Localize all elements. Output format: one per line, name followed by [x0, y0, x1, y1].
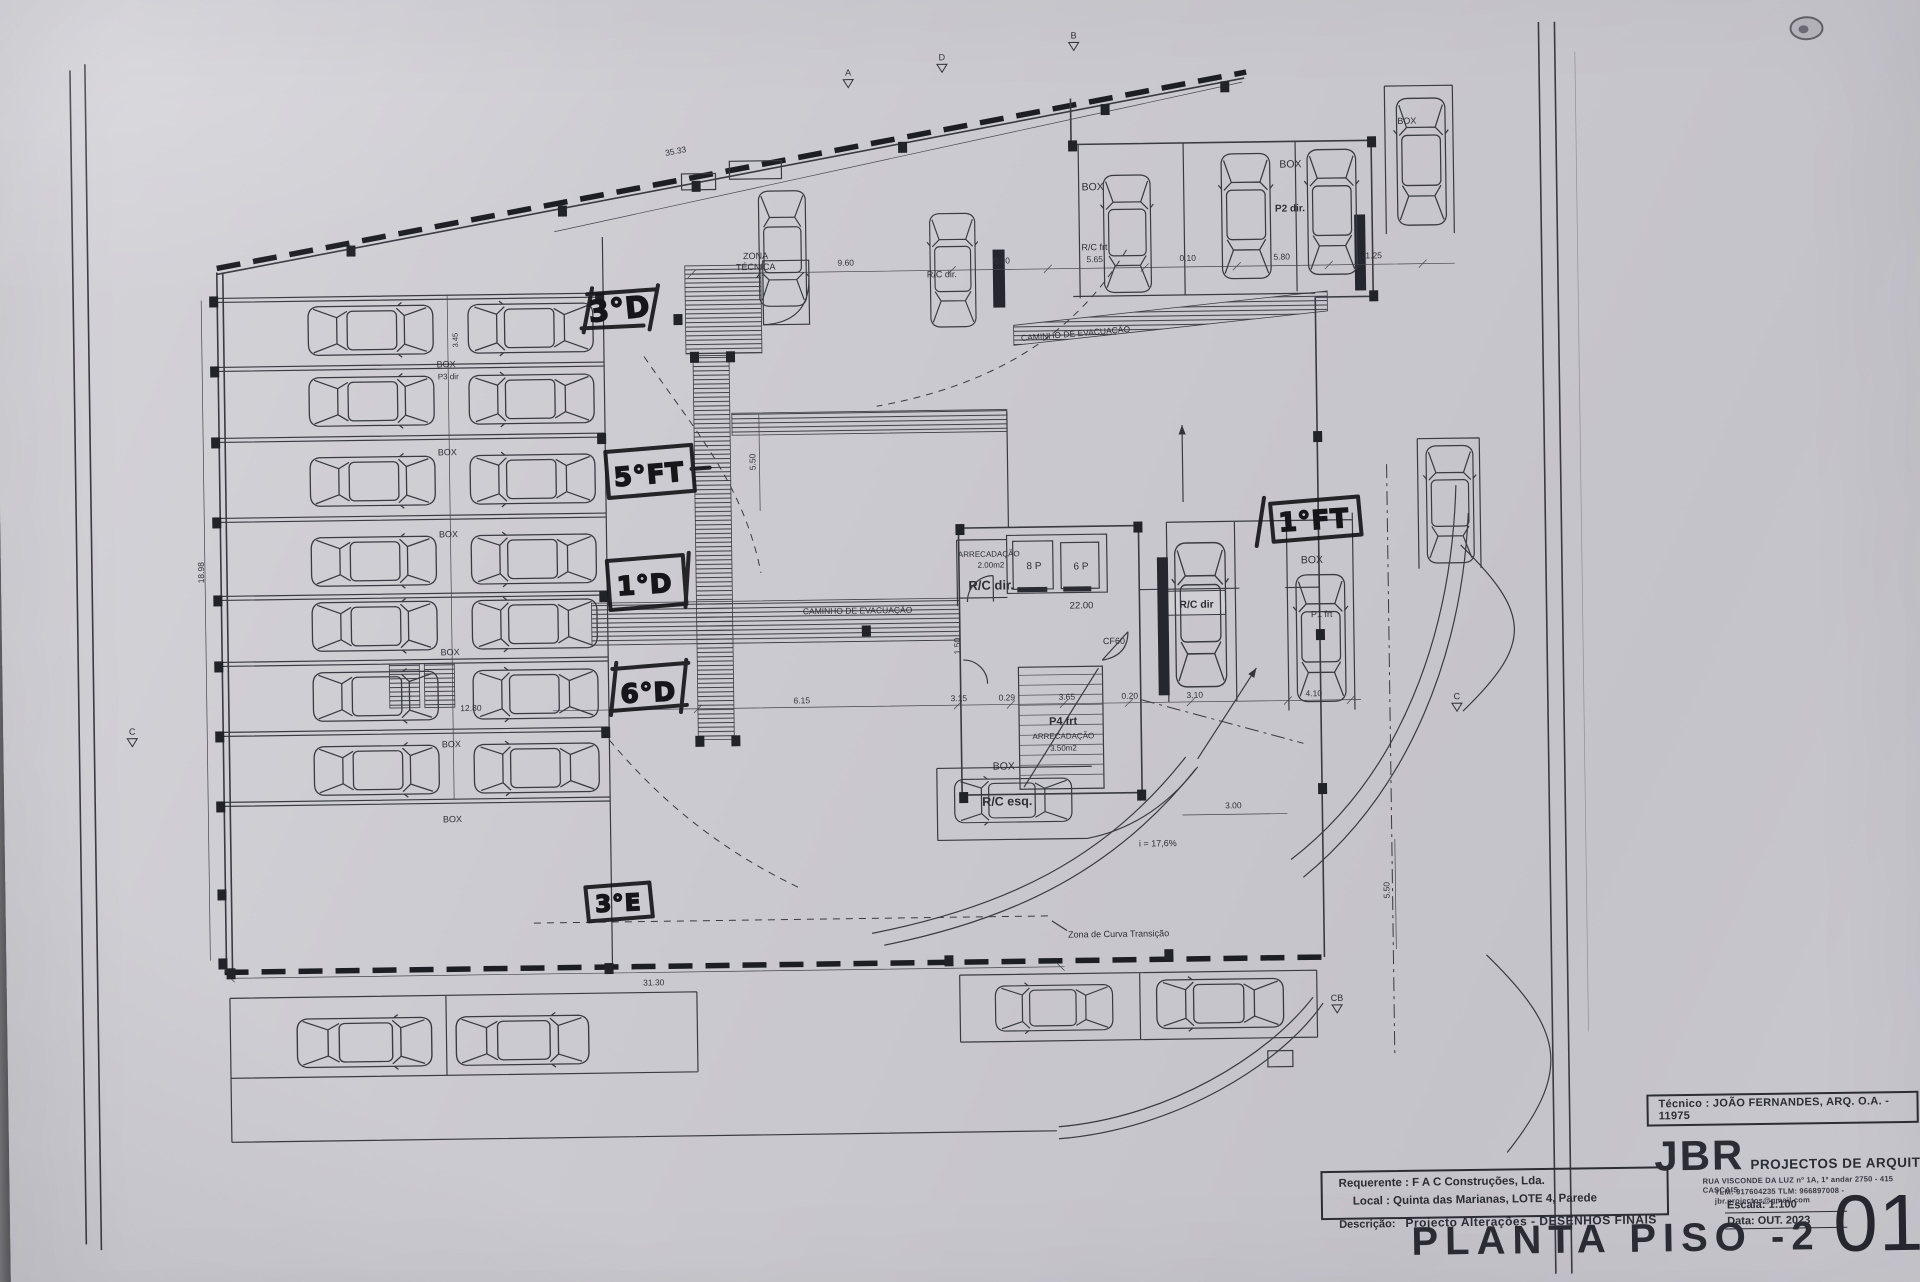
section-marker-label: CB: [1331, 993, 1344, 1003]
column-marker: [862, 625, 871, 636]
dimension-label: 3.10: [1186, 690, 1203, 700]
scale-field: Escala: 1:100: [1725, 1196, 1847, 1214]
dimension-label: 31.30: [643, 977, 665, 987]
scale-date-box: Escala: 1:100 Data: OUT. 2023: [1725, 1196, 1847, 1230]
dimension-label: 5.50: [1381, 882, 1391, 899]
plan-label: CF60: [1103, 636, 1125, 646]
zona-tecnica-label: TÉCNICA: [736, 262, 776, 273]
column-marker: [601, 727, 610, 738]
site-field: Local : Quinta das Marianas, LOTE 4, Par…: [1339, 1189, 1667, 1211]
column-marker: [558, 206, 567, 217]
dimension-label: 3.45: [451, 333, 460, 348]
column-marker: [1068, 140, 1077, 151]
column-marker: [898, 142, 907, 153]
column-marker: [217, 889, 226, 900]
transition-curve-label: Zona de Curva Transição: [1068, 928, 1169, 939]
car: [474, 740, 600, 796]
handwritten-note: 5°FT: [613, 458, 686, 494]
section-marker-icon: [1332, 1005, 1342, 1013]
plan-label: BOX: [1081, 181, 1103, 193]
car: [314, 742, 440, 798]
section-marker-label: C: [129, 727, 136, 737]
dimension-label: 35.33: [664, 144, 687, 158]
section-marker-label: D: [939, 52, 946, 62]
site-boundary-dashed: [212, 71, 1322, 972]
dimension-label: 1.25: [1365, 250, 1382, 260]
column-marker: [1367, 136, 1376, 147]
plan-label: ARRECADAÇÃO: [958, 549, 1020, 559]
column-marker: [959, 792, 968, 803]
car: [471, 531, 597, 587]
plan-label: BOX: [993, 760, 1015, 772]
dimension-label: 1.50: [952, 638, 962, 655]
technician-field: Técnico : JOÃO FERNANDES, ARQ. O.A. - 11…: [1646, 1091, 1918, 1127]
plan-label: P3 dir: [438, 372, 459, 381]
column-marker: [599, 591, 608, 602]
column-marker: [1313, 431, 1322, 442]
plan-label: R/C esq.: [982, 794, 1032, 809]
handwritten-note: 1°FT: [1278, 504, 1350, 539]
plan-label: BOX: [443, 814, 462, 824]
section-marker-icon: [843, 80, 853, 88]
plan-label: BOX: [438, 447, 457, 457]
dimension-label: 12.80: [460, 703, 482, 713]
column-marker: [211, 437, 220, 448]
plan-label: BOX: [1301, 554, 1323, 566]
dimension-label: 0.29: [998, 692, 1015, 702]
hatched-walls: [384, 257, 1334, 744]
section-marker-icon: [1452, 703, 1462, 711]
dimension-label: 3.00: [1225, 800, 1242, 810]
column-marker: [215, 731, 224, 742]
column-marker: [212, 517, 221, 528]
car: [473, 666, 599, 722]
column-marker: [726, 351, 735, 362]
plan-label: BOX: [439, 529, 458, 539]
plan-label: R/C dir.: [927, 269, 957, 279]
section-marker-label: A: [845, 68, 851, 78]
column-marker: [692, 181, 701, 192]
date-field: Data: OUT. 2023: [1725, 1212, 1847, 1230]
plan-label: R/C dir.: [968, 577, 1014, 593]
section-marker-icon: [937, 64, 947, 72]
car: [456, 1012, 589, 1069]
handwritten-note: 6°D: [620, 677, 677, 710]
column-marker: [1369, 290, 1378, 301]
car: [1156, 975, 1283, 1032]
dimension-label: 0.20: [1121, 691, 1138, 701]
dimension-label: 18.98: [196, 562, 206, 584]
zona-tecnica-label: ZONA: [743, 251, 768, 261]
car: [310, 453, 436, 509]
handwritten-note: 3°D: [587, 289, 652, 329]
plan-label: P4 frt: [1049, 715, 1078, 727]
dimension-label: 5.80: [1273, 251, 1290, 261]
punch-hole-mark: [1790, 17, 1822, 39]
plan-label: BOX: [437, 359, 456, 369]
column-marker: [944, 955, 953, 966]
elevator-label: 8 P: [1026, 561, 1041, 572]
section-marker-label: B: [1070, 30, 1076, 40]
column-marker: [210, 366, 219, 377]
paper-sheet: ZONATÉCNICACAMINHO DE EVACUAÇÃOCAMINHO D…: [0, 0, 1920, 1282]
plan-label: 3.50m2: [1050, 743, 1077, 752]
column-marker: [673, 314, 682, 325]
handwritten-note: 1°D: [616, 569, 674, 603]
elevator-label: 6 P: [1073, 561, 1088, 572]
plan-label: R/C frt: [1081, 242, 1108, 252]
column-marker: [1133, 522, 1142, 533]
plan-label: BOX: [1397, 116, 1416, 126]
column-marker: [226, 968, 235, 979]
car: [470, 451, 596, 507]
column-marker: [690, 352, 699, 363]
section-marker-icon: [1069, 42, 1079, 50]
column-marker: [218, 958, 227, 969]
column-marker: [695, 736, 704, 747]
car: [308, 302, 434, 358]
column-marker: [1101, 104, 1110, 115]
car: [1304, 149, 1360, 275]
dimension-label: 6.15: [793, 695, 810, 705]
section-marker-label: C: [1453, 691, 1460, 701]
column-marker: [731, 735, 740, 746]
column-marker: [1316, 629, 1325, 640]
column-marker: [955, 524, 964, 535]
car: [468, 300, 594, 356]
dimension-label: 5.65: [1086, 254, 1103, 264]
car: [312, 598, 438, 654]
column-marker: [1318, 783, 1327, 794]
column-marker: [597, 433, 606, 444]
dimension-label: 0.90: [993, 255, 1010, 265]
car: [1100, 175, 1154, 293]
car: [1423, 445, 1477, 563]
car: [995, 982, 1113, 1034]
photographed-drawing: ZONATÉCNICACAMINHO DE EVACUAÇÃOCAMINHO D…: [0, 0, 1920, 1282]
title-block: Técnico : JOÃO FERNANDES, ARQ. O.A. - 11…: [1261, 1077, 1920, 1278]
description-label: Descrição:: [1339, 1218, 1395, 1231]
dimension-label: 9.60: [837, 258, 854, 268]
dimension-label: 0.10: [1179, 253, 1196, 263]
plan-label: BOX: [1279, 158, 1301, 170]
plan-label: ARRECADAÇÃO: [1032, 731, 1094, 741]
plan-label: P2 dir.: [1275, 203, 1305, 214]
plan-labels: ZONATÉCNICACAMINHO DE EVACUAÇÃOCAMINHO D…: [190, 116, 1428, 994]
column-marker: [346, 246, 355, 257]
level-label: 22.00: [1070, 600, 1094, 611]
car: [472, 596, 598, 652]
firm-logo: JBRPROJECTOS DE ARQUITECTURA: [1654, 1128, 1920, 1181]
plan-label: BOX: [441, 647, 460, 657]
handwritten-note: 3°E: [595, 890, 642, 918]
car: [1218, 153, 1274, 279]
dimension-label: 3.65: [1058, 692, 1075, 702]
car: [297, 1014, 432, 1071]
section-marker-icon: [127, 739, 137, 747]
column-marker: [1164, 949, 1173, 960]
column-marker: [209, 296, 218, 307]
evacuation-path-label: CAMINHO DE EVACUAÇÃO: [803, 605, 913, 617]
parked-cars: [284, 98, 1484, 1071]
column-marker: [604, 963, 613, 974]
dimension-label: 4.10: [1305, 688, 1322, 698]
sheet-number: 01: [1833, 1177, 1920, 1270]
plan-label: BOX: [442, 739, 461, 749]
car: [469, 371, 595, 427]
section-markers: ADBCCCB: [118, 25, 1467, 1030]
column-marker: [213, 595, 222, 606]
car: [311, 533, 437, 589]
plan-label: R/C dir: [1179, 599, 1214, 611]
plan-label: P1 frt: [1311, 609, 1333, 619]
column-marker: [214, 661, 223, 672]
ramp-slope-label: i = 17,6%: [1139, 838, 1177, 849]
dimension-label: 5.50: [747, 453, 757, 470]
column-marker: [216, 801, 225, 812]
car: [309, 373, 435, 429]
column-markers: [206, 79, 1387, 979]
plan-label: 2.00m2: [978, 560, 1005, 569]
firm-tagline: PROJECTOS DE ARQUITECTURA: [1750, 1154, 1920, 1172]
dimension-label: 3.15: [950, 693, 967, 703]
column-marker: [1137, 790, 1146, 801]
column-marker: [1220, 81, 1229, 92]
